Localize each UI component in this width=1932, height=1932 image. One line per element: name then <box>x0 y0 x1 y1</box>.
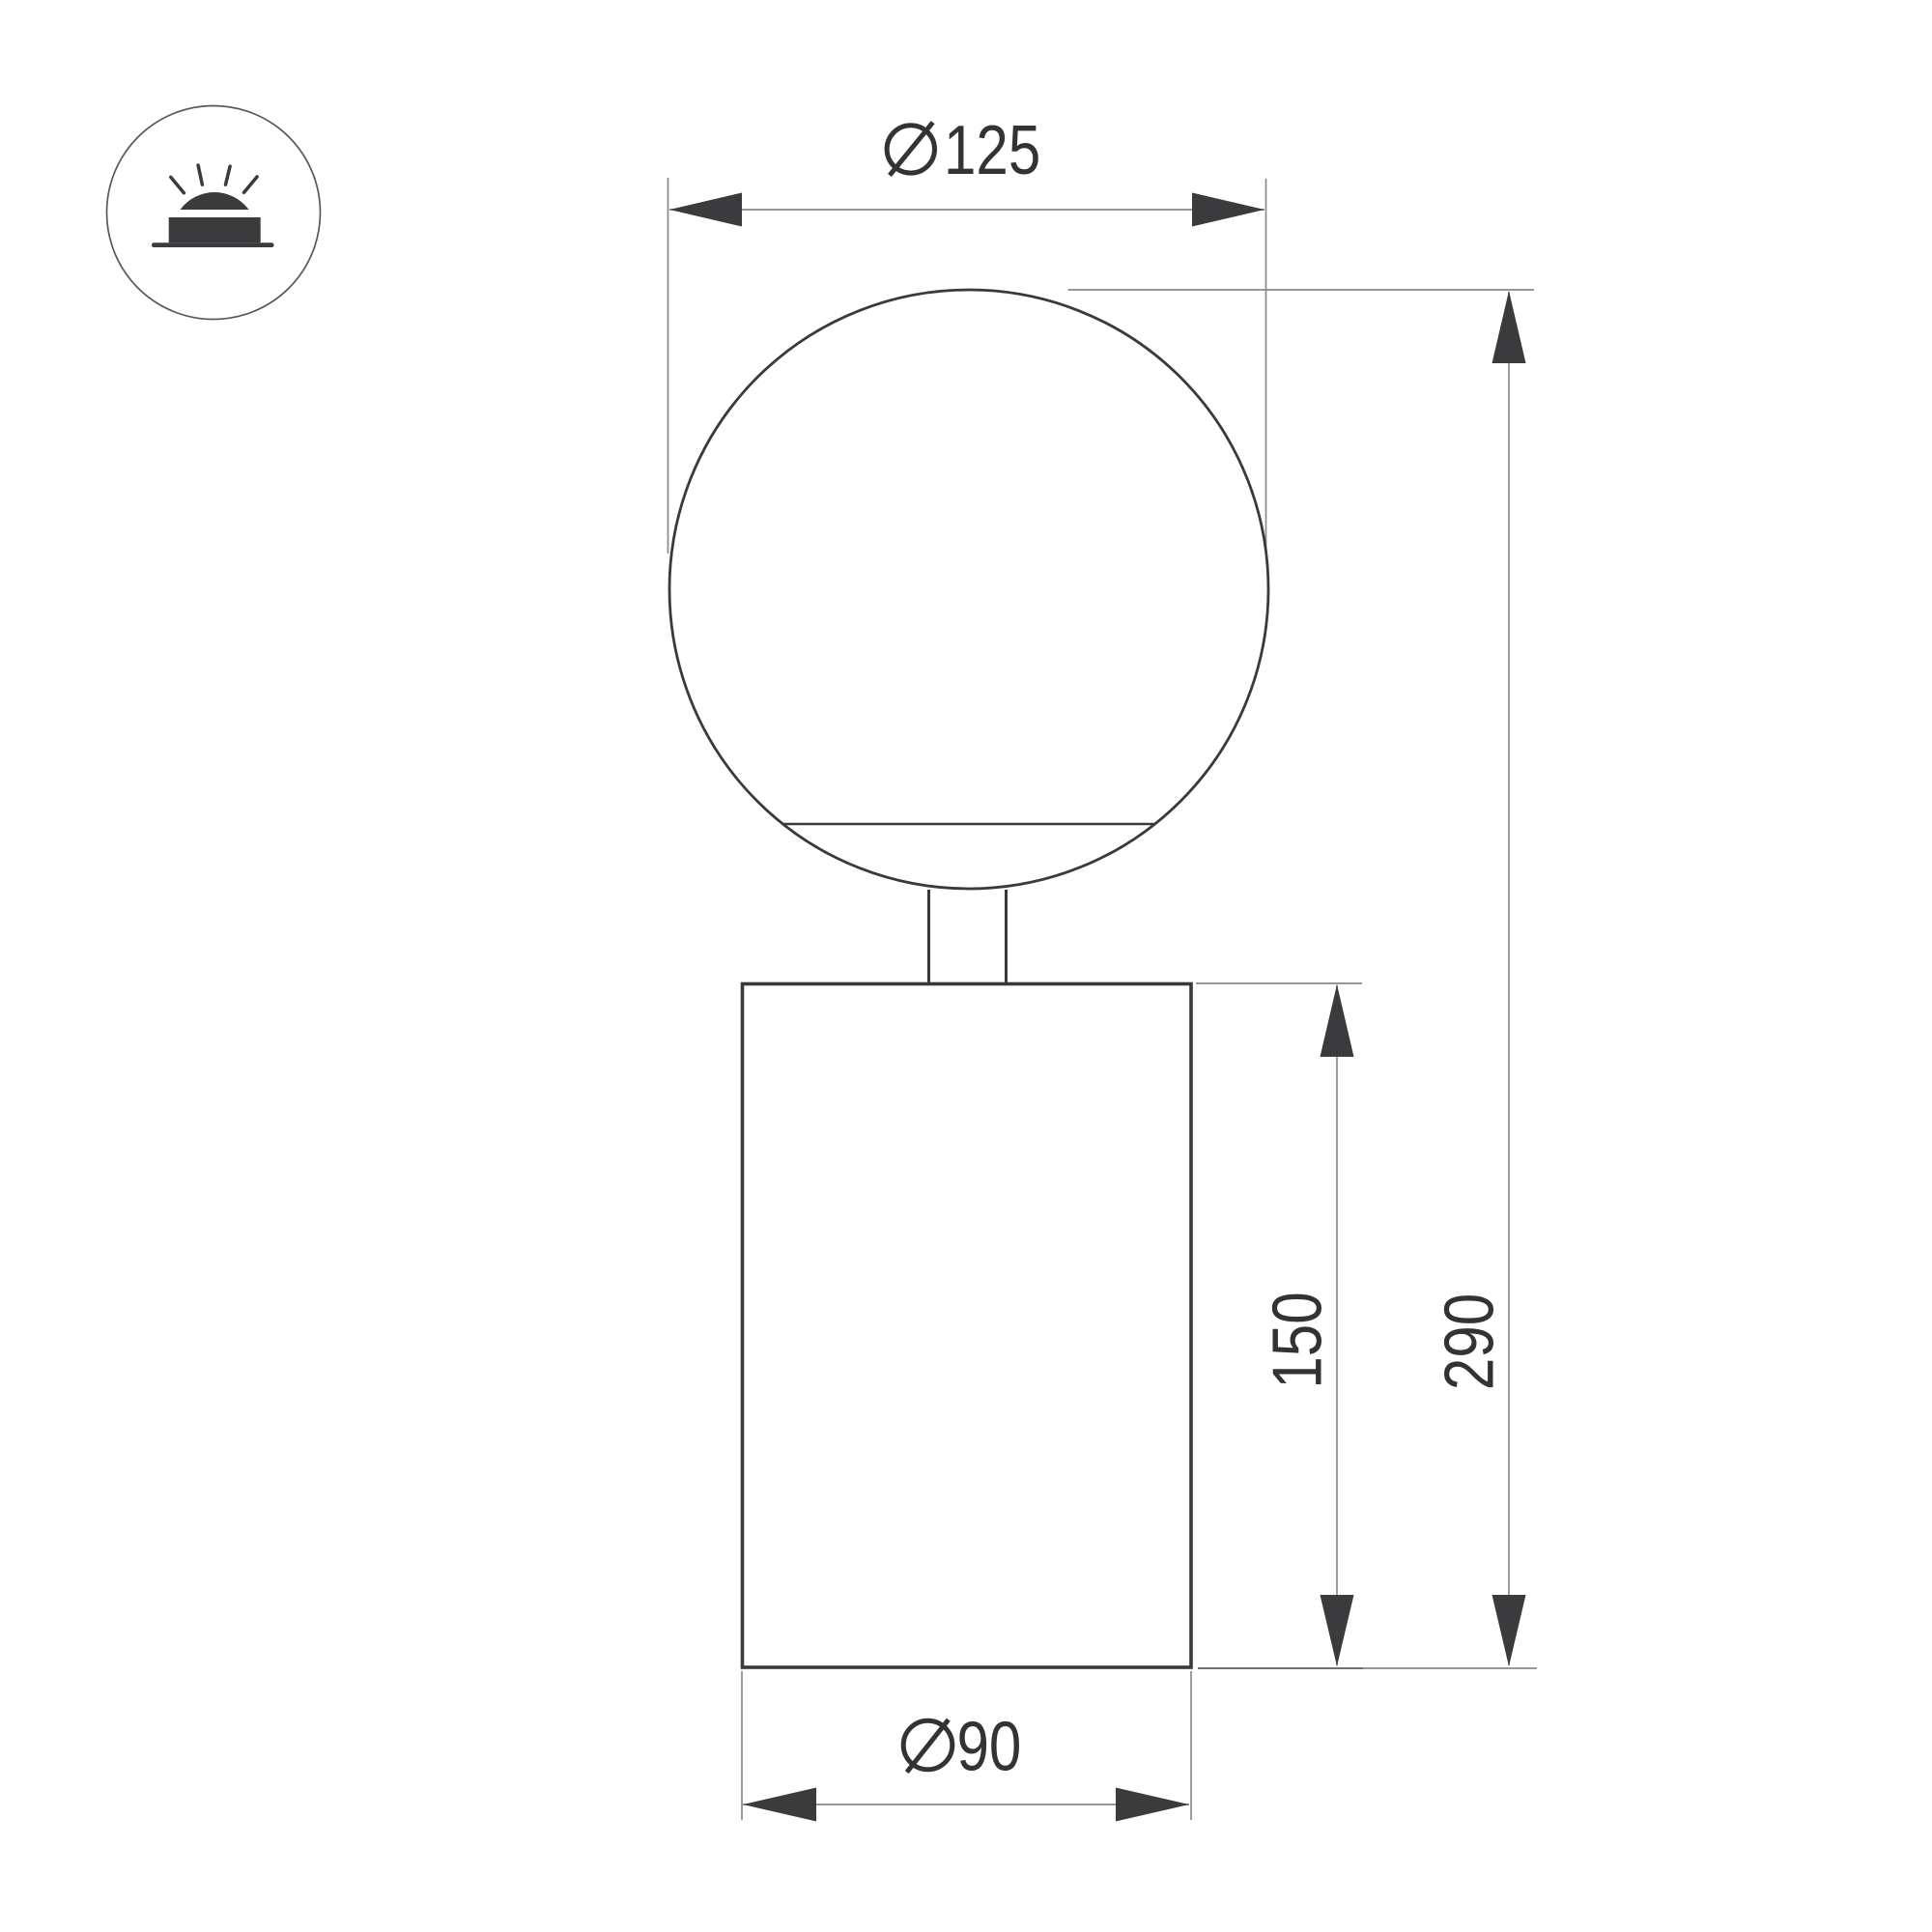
svg-text:290: 290 <box>1431 1293 1508 1390</box>
svg-text:125: 125 <box>944 112 1040 189</box>
svg-text:90: 90 <box>957 1708 1022 1785</box>
svg-text:150: 150 <box>1259 1292 1336 1388</box>
